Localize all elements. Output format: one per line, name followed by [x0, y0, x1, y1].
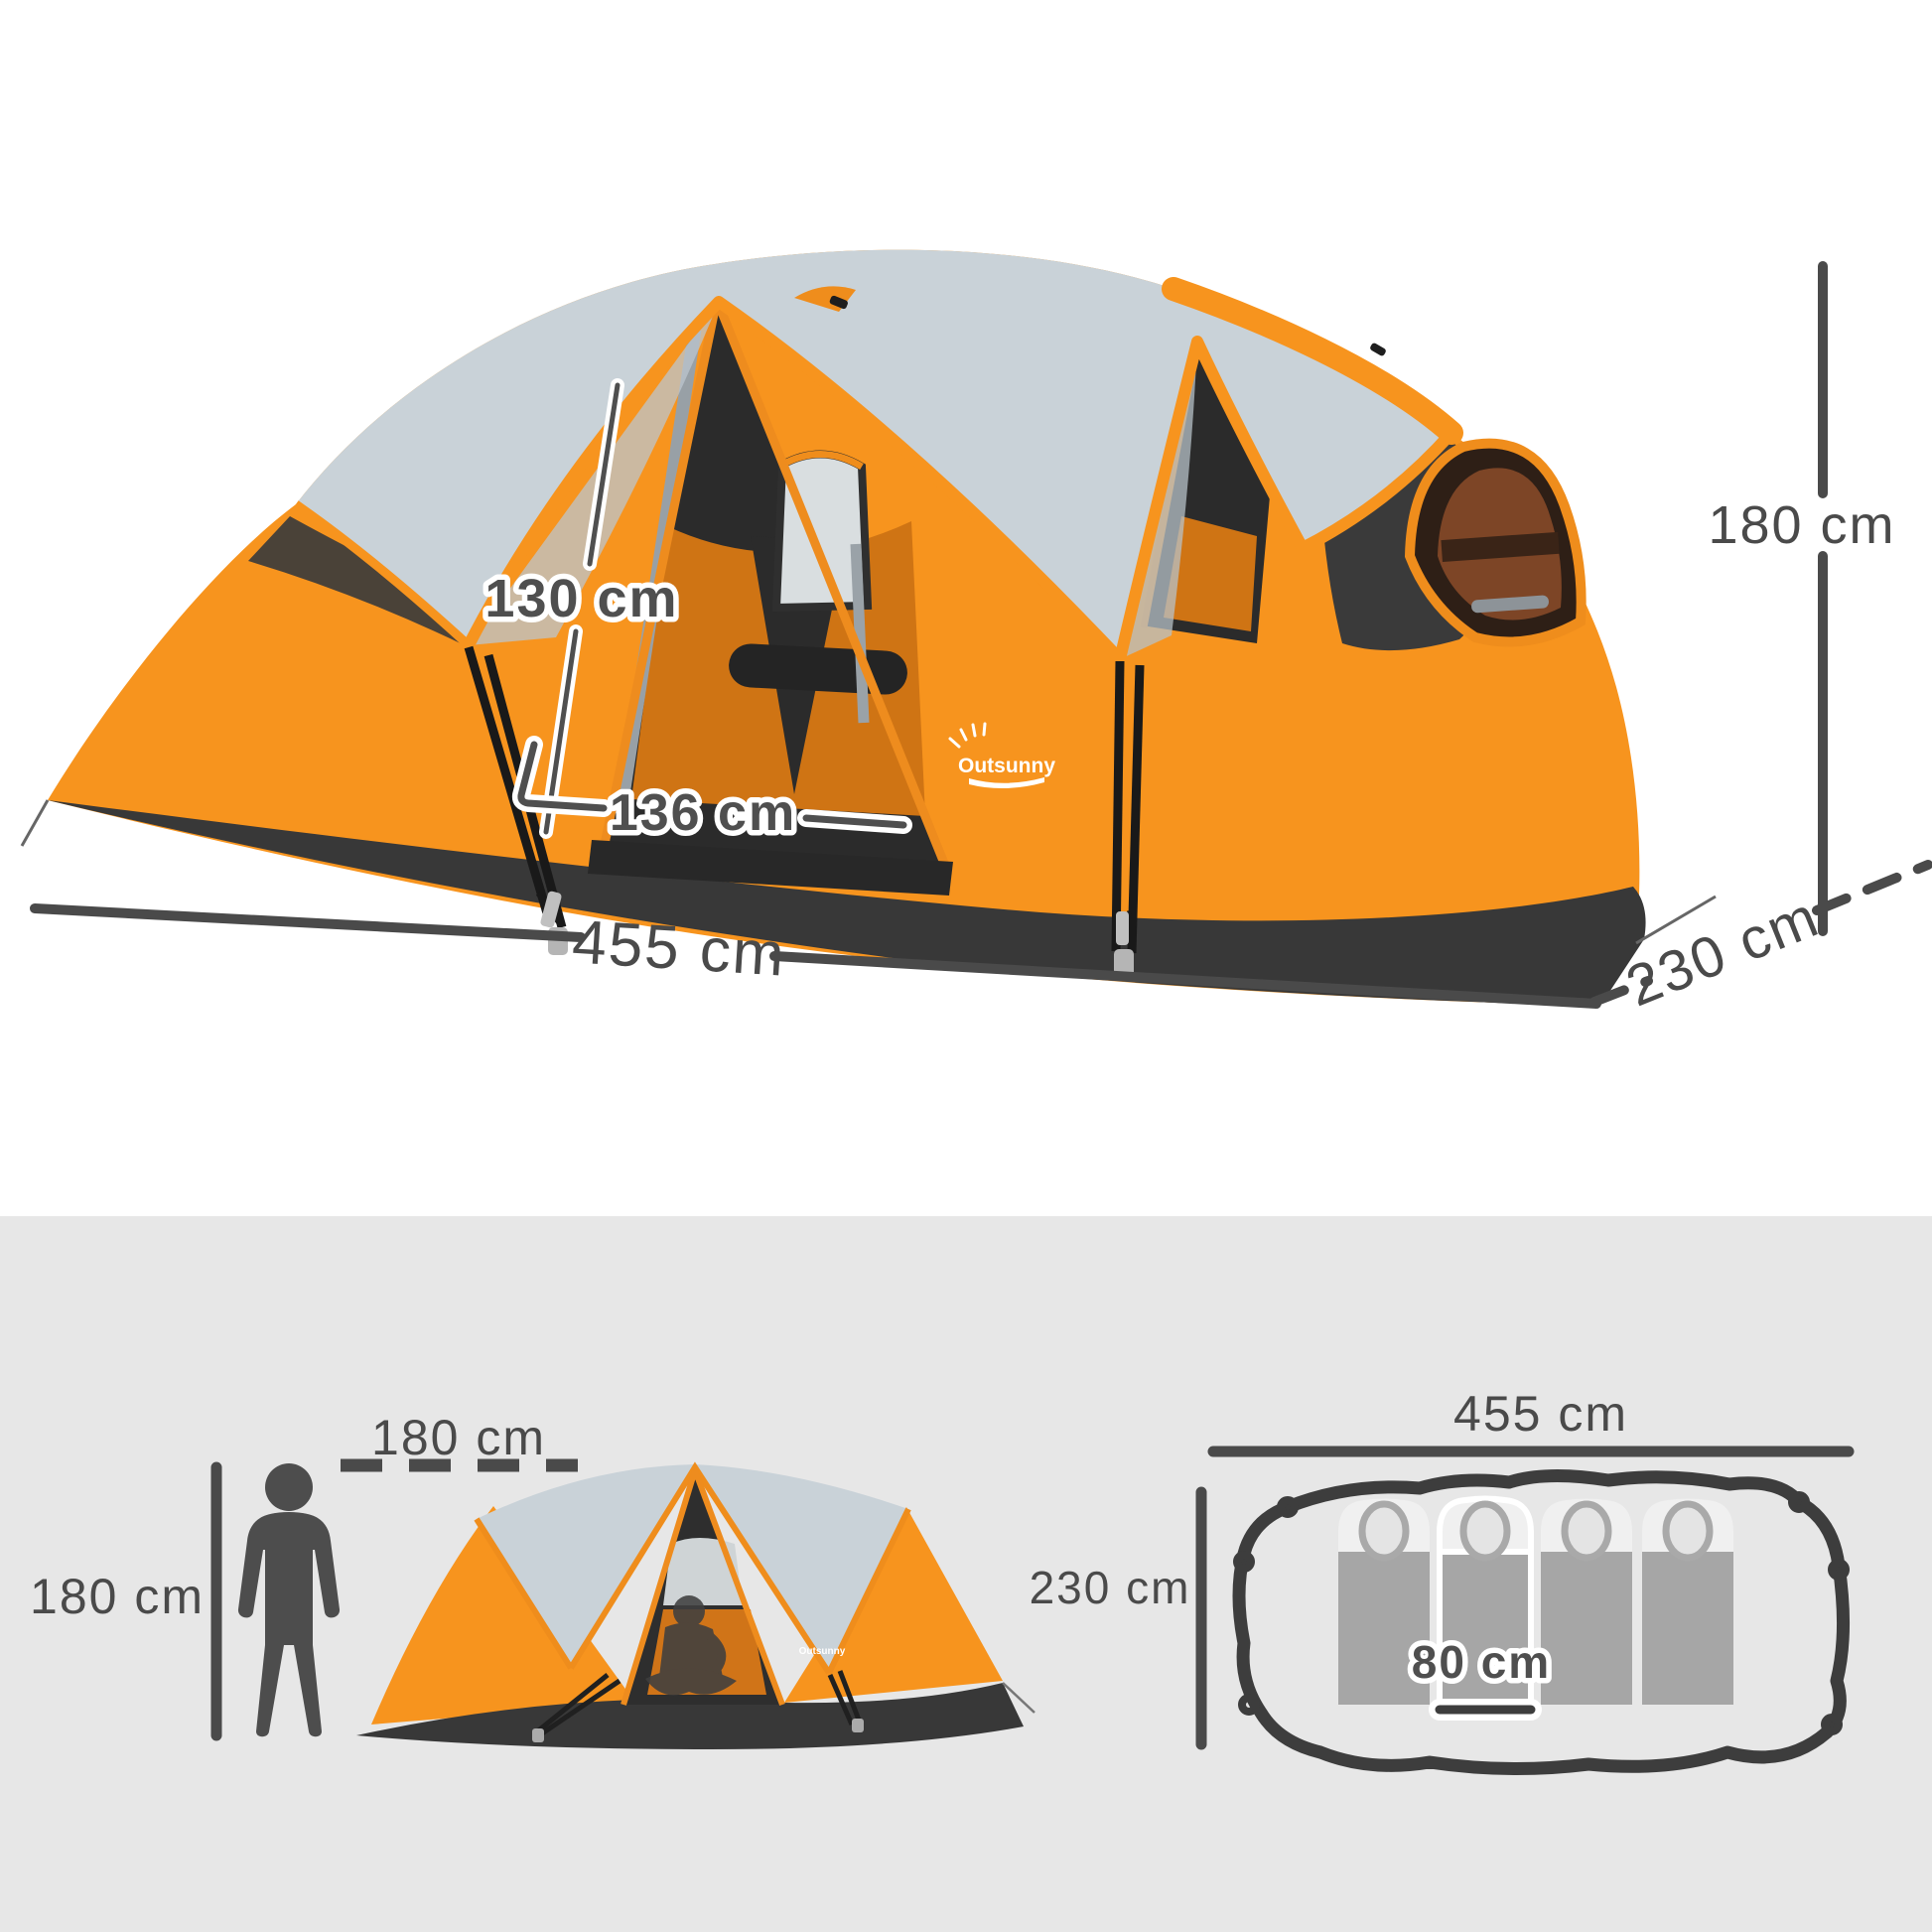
zipper-pull-2 — [1369, 343, 1387, 357]
fp-depth-label: 230 cm — [1030, 1562, 1191, 1613]
door-width-label: 136 cm — [610, 784, 796, 842]
guyline-far-left — [22, 800, 48, 846]
depth-label: 230 cm — [1617, 884, 1828, 1019]
sv-stake-right — [852, 1719, 864, 1732]
person-head — [265, 1463, 313, 1511]
strap-right-a — [1116, 661, 1120, 951]
tensioner-right — [1116, 911, 1129, 945]
sv-logo-text: Outsunny — [799, 1646, 846, 1657]
door-height-label: 130 cm — [484, 569, 678, 628]
sleeping-bag — [1642, 1499, 1733, 1706]
product-dimension-sheet: Outsunny 130 cm 136 cm 455 cm — [0, 0, 1932, 1932]
height-label: 180 cm — [1708, 495, 1895, 555]
dimension-diagrams: 180 cm 180 cm — [0, 1216, 1932, 1932]
main-photo: Outsunny 130 cm 136 cm 455 cm — [0, 0, 1932, 1216]
sitting-person-head — [673, 1595, 705, 1627]
brand-logo-text: Outsunny — [958, 755, 1055, 777]
fp-length-label: 455 cm — [1453, 1386, 1628, 1442]
tent-3d-render: Outsunny — [22, 250, 1716, 1006]
person-height-label: 180 cm — [30, 1569, 205, 1624]
sleeping-bag — [1541, 1499, 1632, 1706]
bag-width-label: 80 cm — [1412, 1636, 1551, 1688]
depth-dimension: 230 cm — [1594, 865, 1928, 1019]
length-label: 455 cm — [570, 907, 787, 989]
height-dimension: 180 cm — [1708, 266, 1895, 931]
clearance-label: 180 cm — [371, 1410, 546, 1465]
sv-stake-left — [532, 1728, 544, 1742]
rolled-door-bar — [728, 642, 908, 695]
